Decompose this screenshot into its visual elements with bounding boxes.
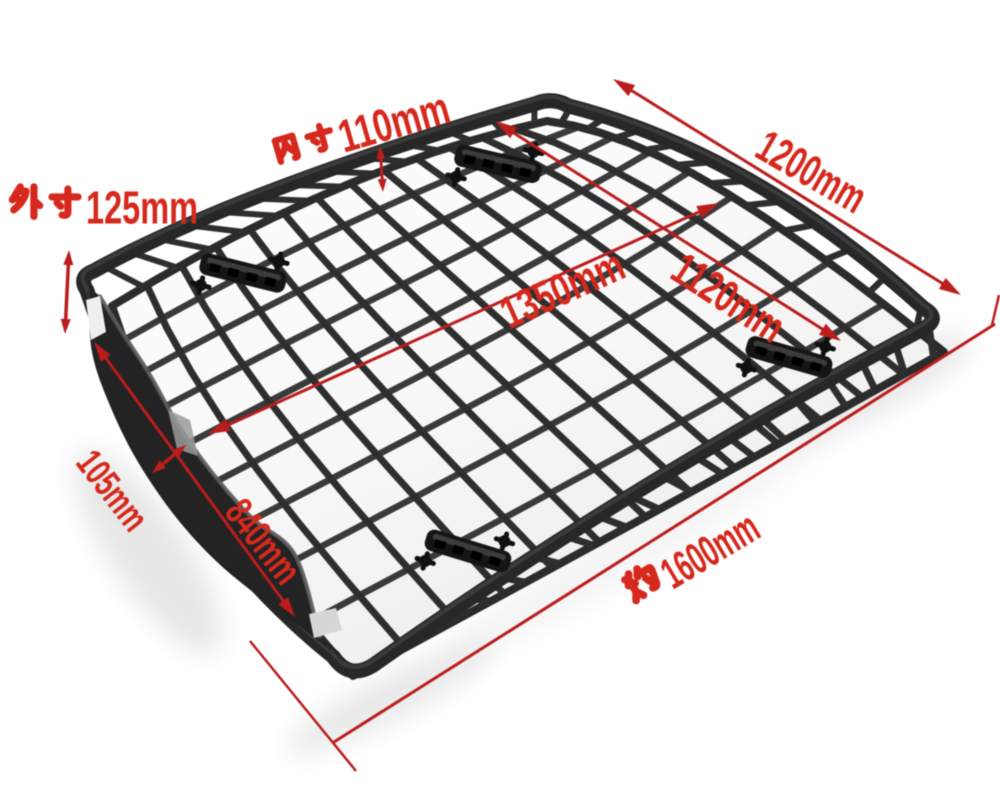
svg-text:125mm: 125mm xyxy=(86,182,198,234)
